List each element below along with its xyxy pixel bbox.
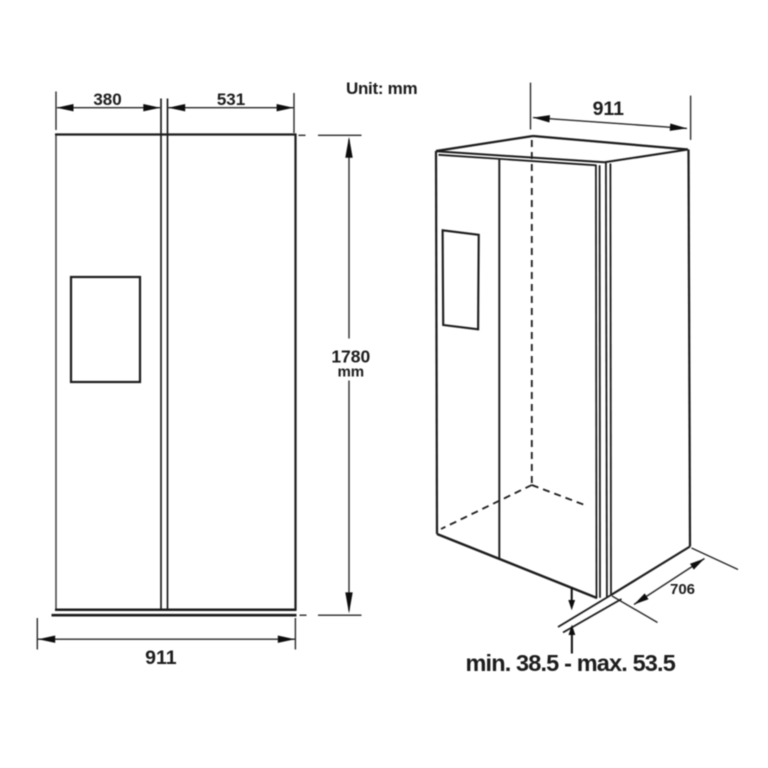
svg-text:min. 38.5 - max. 53.5: min. 38.5 - max. 53.5: [465, 650, 675, 676]
svg-text:911: 911: [593, 98, 625, 120]
svg-text:911: 911: [145, 647, 177, 669]
svg-text:531: 531: [217, 90, 245, 109]
svg-text:Unit: mm: Unit: mm: [346, 79, 417, 98]
svg-text:mm: mm: [337, 364, 364, 381]
svg-text:380: 380: [93, 90, 121, 109]
svg-text:706: 706: [670, 581, 695, 598]
